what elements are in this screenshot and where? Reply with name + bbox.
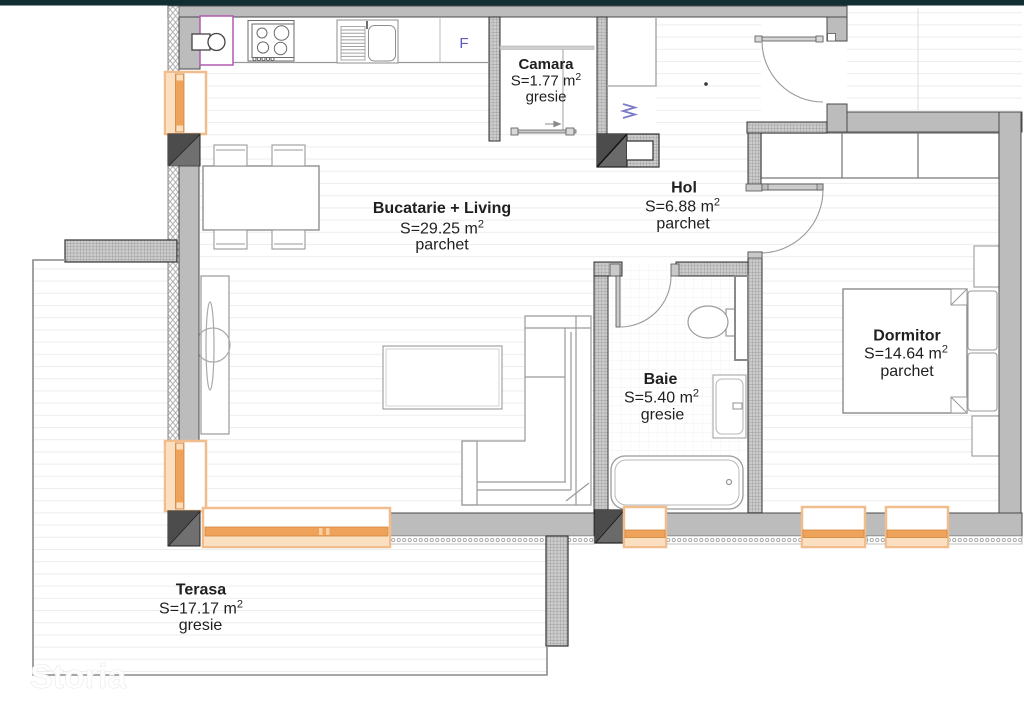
svg-text:parchet: parchet — [656, 216, 710, 233]
svg-text:gresie: gresie — [526, 89, 567, 106]
svg-text:Storia: Storia — [30, 658, 127, 696]
svg-text:Terasa: Terasa — [176, 582, 227, 599]
svg-text:F: F — [459, 35, 468, 52]
svg-text:parchet: parchet — [415, 237, 469, 254]
svg-text:Dormitor: Dormitor — [873, 328, 941, 345]
svg-text:gresie: gresie — [179, 617, 223, 634]
svg-text:parchet: parchet — [880, 363, 934, 380]
svg-text:S=1.77 m2: S=1.77 m2 — [511, 71, 582, 90]
svg-text:S=5.40 m2: S=5.40 m2 — [624, 388, 699, 407]
svg-text:S=29.25 m2: S=29.25 m2 — [400, 219, 484, 238]
svg-text:Camara: Camara — [518, 56, 574, 73]
svg-text:S=17.17 m2: S=17.17 m2 — [159, 599, 243, 618]
svg-text:gresie: gresie — [641, 407, 685, 424]
svg-text:S=14.64 m2: S=14.64 m2 — [864, 344, 948, 363]
svg-text:Hol: Hol — [671, 180, 697, 197]
svg-text:Bucatarie + Living: Bucatarie + Living — [373, 200, 511, 217]
svg-text:Baie: Baie — [644, 371, 678, 388]
svg-text:S=6.88 m2: S=6.88 m2 — [645, 197, 720, 216]
